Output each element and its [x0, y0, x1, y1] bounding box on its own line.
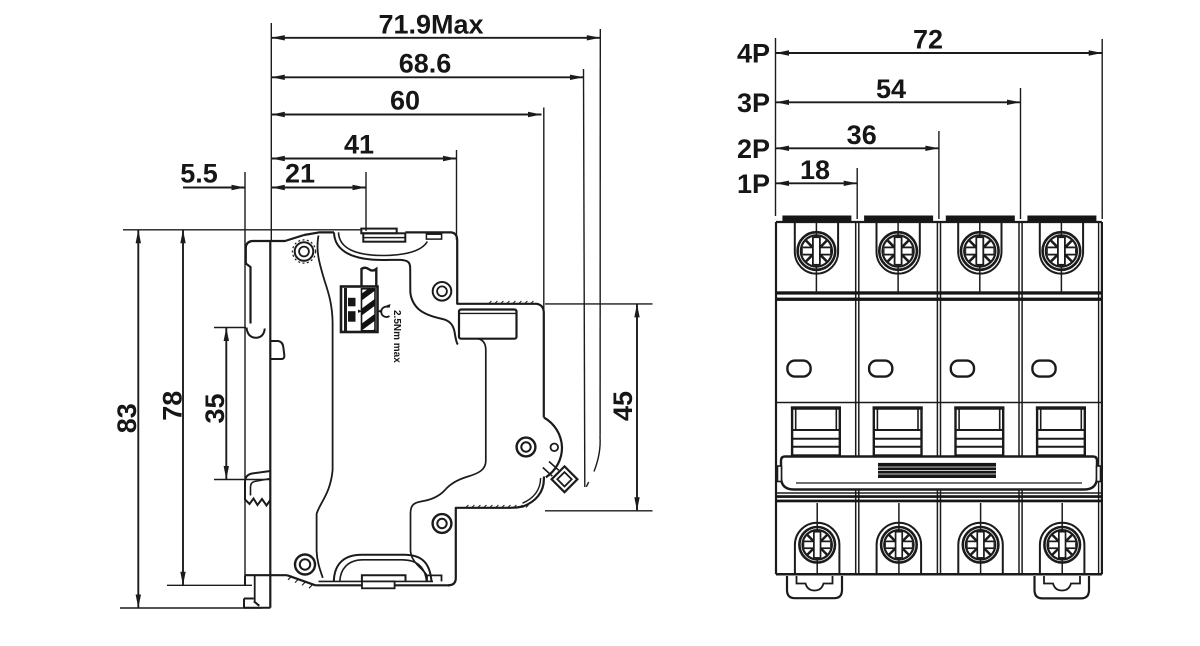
svg-text:83: 83 — [112, 403, 142, 433]
svg-text:1P: 1P — [737, 169, 770, 199]
svg-text:36: 36 — [847, 120, 877, 150]
svg-text:18: 18 — [800, 155, 830, 185]
svg-text:3P: 3P — [737, 88, 770, 118]
svg-text:21: 21 — [285, 159, 315, 189]
svg-text:5.5: 5.5 — [180, 159, 218, 189]
svg-text:60: 60 — [390, 86, 420, 116]
svg-text:54: 54 — [876, 74, 906, 104]
svg-text:71.9Max: 71.9Max — [378, 9, 483, 39]
svg-text:78: 78 — [157, 391, 187, 421]
svg-text:68.6: 68.6 — [399, 48, 452, 78]
svg-text:2P: 2P — [737, 134, 770, 164]
svg-text:2.5Nm max: 2.5Nm max — [391, 310, 402, 363]
svg-text:35: 35 — [200, 393, 230, 423]
svg-text:45: 45 — [608, 391, 638, 421]
svg-text:4P: 4P — [737, 39, 770, 69]
svg-text:72: 72 — [913, 25, 943, 55]
svg-text:41: 41 — [344, 130, 374, 160]
